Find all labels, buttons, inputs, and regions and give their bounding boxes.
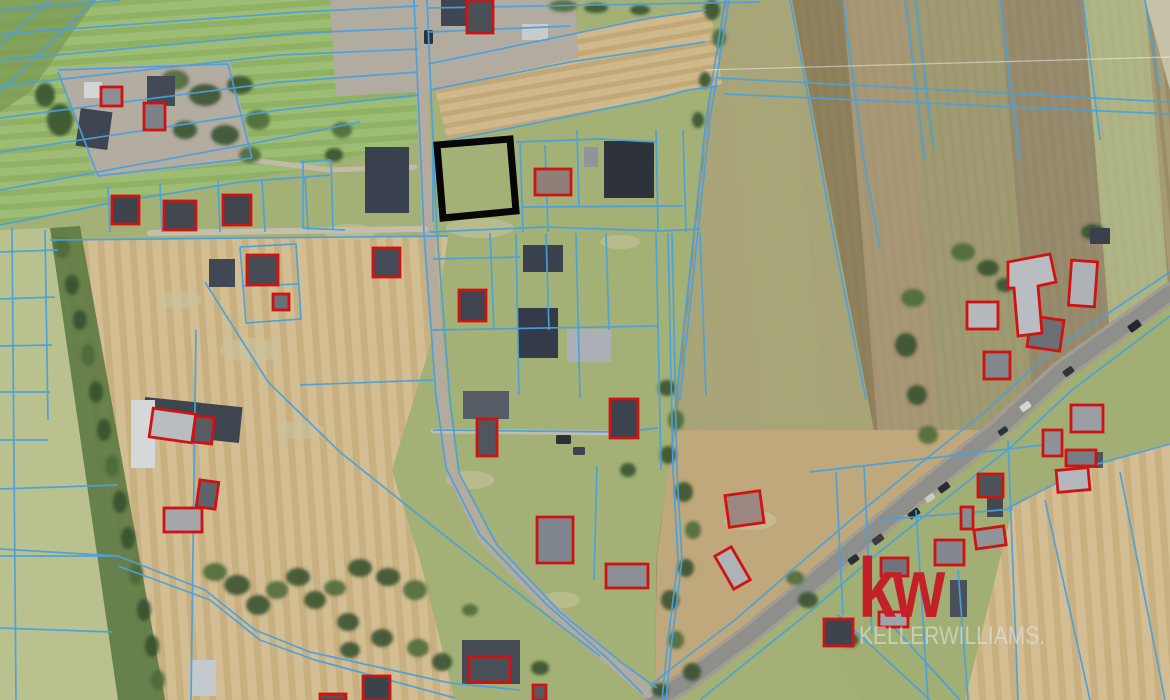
red-outlined-building — [193, 416, 215, 444]
red-outlined-building — [320, 694, 346, 700]
red-outlined-building — [164, 508, 202, 532]
red-outlined-building — [112, 196, 139, 224]
building-roof — [567, 329, 611, 362]
red-outlined-building — [725, 491, 764, 528]
building-roof — [147, 76, 175, 106]
red-outlined-building — [606, 564, 648, 588]
red-outlined-building — [610, 399, 638, 438]
red-outlined-building — [533, 685, 546, 700]
red-outlined-building — [537, 517, 573, 563]
red-outlined-building — [824, 619, 853, 646]
building-roof — [987, 497, 1003, 517]
property-aerial-map: kw KELLERWILLIAMS. — [0, 0, 1170, 700]
red-outlined-building — [149, 408, 196, 443]
red-outlined-building — [469, 657, 510, 682]
red-outlined-building — [1068, 260, 1097, 307]
red-outlined-building — [223, 195, 251, 225]
red-outlined-building — [967, 302, 998, 329]
red-outlined-building — [273, 294, 289, 310]
red-outlined-building — [373, 248, 400, 277]
red-outlined-building — [961, 507, 973, 529]
red-outlined-building — [247, 255, 278, 285]
building-roof — [365, 147, 409, 213]
red-outlined-building — [535, 169, 571, 195]
red-outlined-building — [196, 480, 219, 509]
building-roof — [76, 108, 113, 150]
red-outlined-building — [984, 352, 1010, 379]
red-outlined-building — [1043, 430, 1062, 456]
building-roof — [463, 391, 509, 419]
aerial-map-canvas: kw KELLERWILLIAMS. — [0, 0, 1170, 700]
building-roof — [523, 245, 563, 272]
building-roof — [604, 141, 654, 198]
building-roof — [584, 147, 598, 167]
red-outlined-building — [363, 676, 390, 700]
red-outlined-building — [1066, 450, 1096, 466]
red-outlined-building — [978, 474, 1003, 497]
red-outlined-building — [101, 87, 122, 106]
red-outlined-building — [974, 526, 1006, 549]
building-roof — [209, 259, 235, 287]
red-outlined-building — [459, 290, 486, 321]
red-outlined-building — [164, 201, 196, 230]
red-outlined-building — [1056, 468, 1090, 493]
red-outlined-building — [144, 103, 165, 130]
red-outlined-building — [467, 0, 493, 33]
building-roof — [1090, 228, 1110, 244]
red-outlined-building — [477, 419, 497, 456]
map-layers — [0, 0, 1170, 700]
kw-logo-text: kw — [858, 541, 946, 635]
keller-williams-watermark-text: KELLERWILLIAMS. — [859, 622, 1045, 650]
building-roof — [518, 308, 558, 358]
vehicle — [556, 435, 571, 444]
red-outlined-building — [1071, 405, 1103, 432]
vehicle — [573, 447, 585, 455]
building-roof — [84, 82, 102, 98]
building-roof — [190, 660, 216, 696]
